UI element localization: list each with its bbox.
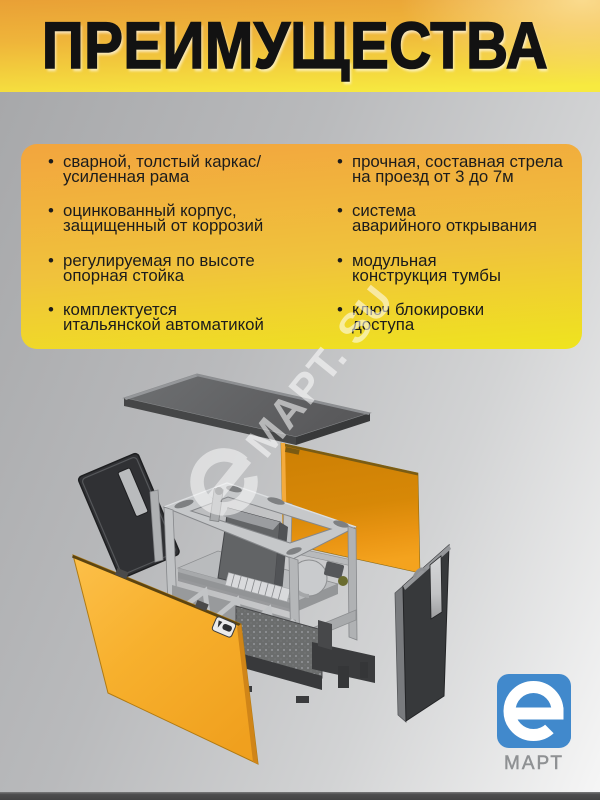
svg-text:МАРТ: МАРТ [504,753,564,774]
